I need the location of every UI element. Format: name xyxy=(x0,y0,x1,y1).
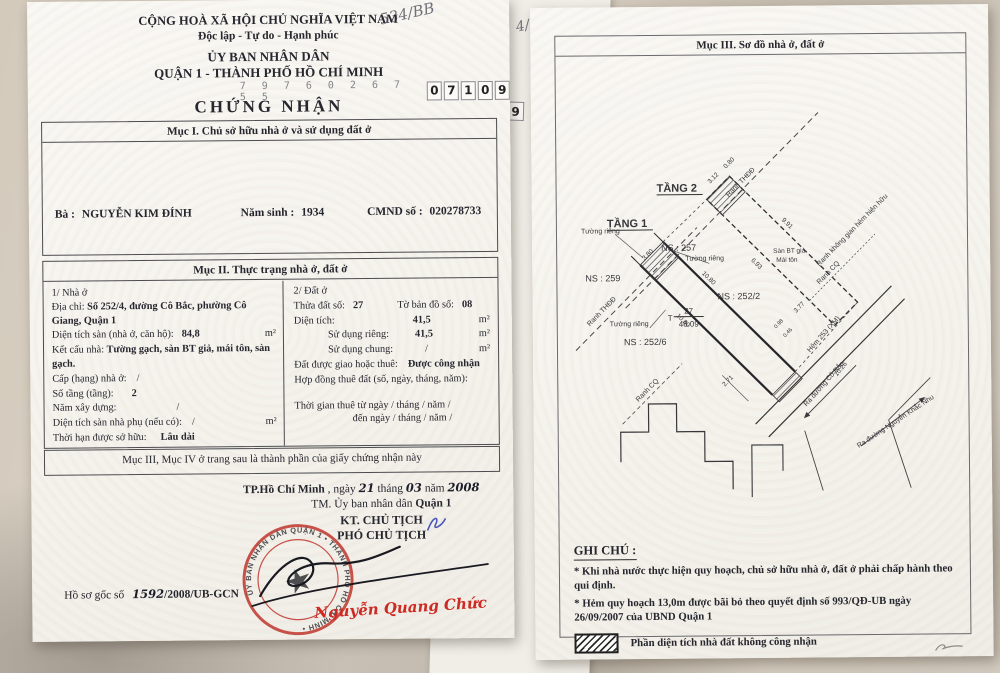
certificate-title: CHỨNG NHẬN xyxy=(28,95,510,119)
day-value: 21 xyxy=(359,481,375,495)
private-use-unit: m² xyxy=(479,327,490,341)
site-plan-box: Mục III. Sơ đồ nhà ở, đất ở xyxy=(554,32,971,638)
parcel-t: T xyxy=(668,314,673,323)
dossier-label: Hồ sơ gốc số xyxy=(64,589,124,602)
site-plan-drawing: TẦNG 2 TẦNG 1 NS : 257 NS : 259 NS : 252… xyxy=(555,55,967,511)
birth-year: 1934 xyxy=(301,206,324,218)
year-label: năm xyxy=(425,482,445,494)
certificate-page: 534/BB CỘNG HOÀ XÃ HỘI CHỦ NGHĨA VIỆT NA… xyxy=(27,0,515,642)
street-line xyxy=(805,430,824,490)
plot-value: 27 xyxy=(353,299,363,313)
legend-hatched-swatch xyxy=(574,633,618,653)
structure-label: Kết cấu nhà: xyxy=(52,345,104,356)
land-area-unit: m² xyxy=(479,313,490,327)
tm-unit: Quận 1 xyxy=(415,497,451,509)
floor-area-row: Diện tích sàn (nhà ở, căn hộ): 84,8 m² xyxy=(52,327,276,343)
shared-use-value: / xyxy=(425,343,428,357)
aux-area-label: Diện tích sàn nhà phụ (nếu có): xyxy=(53,416,182,431)
tenure-label: Thời hạn được sở hữu: xyxy=(53,431,147,446)
tick xyxy=(631,256,640,265)
neighbor-outline xyxy=(752,445,783,497)
legend-row: Phần diện tích nhà đất không công nhận xyxy=(574,630,958,653)
map-value: 08 xyxy=(462,298,472,312)
house-column: 1/ Nhà ở Địa chỉ: Số 252/4, đường Cô Bắc… xyxy=(43,281,284,448)
dimension: 3.77 xyxy=(793,300,807,314)
granted-row: Đất được giao hoặc thuê: Được công nhận xyxy=(294,357,490,373)
boundary-label: Ranh CQ xyxy=(635,377,661,403)
private-use-label: Sử dụng riêng: xyxy=(328,328,389,342)
alley-line xyxy=(754,286,892,424)
floor2-label: TẦNG 2 xyxy=(657,182,697,195)
leader-line xyxy=(650,310,666,328)
national-title: CỘNG HOÀ XÃ HỘI CHỦ NGHĨA VIỆT NAM xyxy=(27,11,509,30)
floors-value: 2 xyxy=(132,387,137,401)
owner-line: Bà : NGUYỄN KIM ĐÍNH Năm sinh : 1934 CMN… xyxy=(55,205,481,221)
wall-label: Tường riêng xyxy=(581,228,620,235)
shared-use-unit: m² xyxy=(479,342,490,356)
material-note: Sàn BT giả xyxy=(773,248,805,255)
legend-row: Phần diện tích nhà có chủ quyền phạm quy… xyxy=(575,659,959,660)
id-number: 020278733 xyxy=(429,205,481,217)
legend-label: Phần diện tích nhà đất không công nhận xyxy=(630,634,816,650)
land-area-row: Diện tích: 41,5 m² xyxy=(294,313,490,329)
muc2-box: Mục II. Thực trạng nhà ở, đất ở 1/ Nhà ở… xyxy=(42,257,500,449)
dimension: 0.46 xyxy=(782,327,794,339)
wall-label: Tường riêng xyxy=(685,255,724,262)
corner-pencil-mark xyxy=(934,636,966,654)
muc34-note: Mục III, Mục IV ở trang sau là thành phầ… xyxy=(45,447,499,467)
parcel-number: 27 xyxy=(684,307,694,316)
blue-pen-mark xyxy=(423,512,449,534)
dossier-suffix: /2008/UB-GCN xyxy=(164,588,239,601)
muc34-box: Mục III, Mục IV ở trang sau là thành phầ… xyxy=(44,446,500,476)
build-year-label: Năm xây dựng: xyxy=(52,402,116,416)
month-label: tháng xyxy=(377,483,403,495)
address-label: Địa chỉ: xyxy=(52,301,85,312)
private-use-row: Sử dụng riêng: 41,5 m² xyxy=(294,327,490,343)
shared-use-row: Sử dụng chung: / m² xyxy=(294,342,490,358)
neighbor-label: NS : 259 xyxy=(585,273,620,283)
notes-heading: GHI CHÚ : xyxy=(574,543,637,561)
grade-label: Cấp (hạng) nhà ở: xyxy=(52,372,126,386)
land-area-label: Diện tích: xyxy=(294,314,335,328)
floors-label: Số tầng (tầng): xyxy=(52,387,113,401)
plot-row: Thửa đất số: 27 Tờ bản đồ số: 08 xyxy=(294,298,490,314)
aux-area-unit: m² xyxy=(266,415,277,429)
neighbor-label: NS : 252/2 xyxy=(717,291,760,301)
build-year-row: Năm xây dựng: / xyxy=(52,400,276,416)
private-use-value: 41,5 xyxy=(415,328,433,342)
land-title: 2/ Đất ở xyxy=(293,283,489,299)
build-year-value: / xyxy=(176,401,179,415)
street-line xyxy=(889,420,912,488)
aux-area-value: / xyxy=(192,416,195,430)
photo-of-certificate: 4/BB 9 534/BB CỘNG HOÀ XÃ HỘI CHỦ NGHĨA … xyxy=(0,0,1000,673)
material-note: Mái tôn xyxy=(776,257,798,264)
plot-label: Thửa đất số: xyxy=(294,299,345,313)
cq-boundary-line xyxy=(622,364,683,425)
aux-area-row: Diện tích sàn nhà phụ (nếu có): / m² xyxy=(53,415,277,431)
map-label: Tờ bản đồ số: xyxy=(397,298,454,312)
hatched-area xyxy=(772,372,802,402)
floors-row: Số tầng (tầng): 2 xyxy=(52,385,276,401)
id-label: CMND số : xyxy=(367,206,423,218)
notes-section: GHI CHÚ : * Khi nhà nước thực hiện quy h… xyxy=(574,538,959,660)
date-pre: , ngày xyxy=(328,483,356,495)
granted-label: Đất được giao hoặc thuê: xyxy=(294,358,398,373)
dimension: 3.12 xyxy=(707,171,721,185)
neighbor-outline xyxy=(620,403,733,490)
wall-label: Tường riêng xyxy=(610,321,649,328)
site-plan-heading: Mục III. Sơ đồ nhà ở, đất ở xyxy=(555,33,965,57)
note-item: * Hẻm quy hoạch 13,0m được bãi bỏ theo q… xyxy=(574,593,958,625)
contract-row: Hợp đồng thuê đất (số, ngày, tháng, năm)… xyxy=(294,372,490,388)
structure-row: Kết cấu nhà: Tường gạch, sàn BT giả, mái… xyxy=(52,342,276,372)
tick xyxy=(654,233,663,242)
granted-value: Được công nhận xyxy=(408,357,480,371)
lease-to-row: đến ngày / tháng / năm / xyxy=(295,411,491,427)
floor-area-unit: m² xyxy=(265,327,276,341)
muc2-heading: Mục II. Thực trạng nhà ở, đất ở xyxy=(43,258,497,282)
dimension: 0.98 xyxy=(773,318,785,330)
shared-use-label: Sử dụng chung: xyxy=(328,343,393,357)
floor-area-value: 84,8 xyxy=(182,328,200,342)
note-item: * Khi nhà nước thực hiện quy hoạch, chủ … xyxy=(574,561,958,593)
dimension: 6.93 xyxy=(749,257,763,271)
dossier-line: Hồ sơ gốc số 1592/2008/UB-GCN xyxy=(64,586,239,602)
house-address-row: Địa chỉ: Số 252/4, đường Cô Bắc, phường … xyxy=(52,299,276,329)
muc1-box: Mục I. Chủ sở hữu nhà ở và sử dụng đất ở… xyxy=(41,118,498,256)
tenure-value: Lâu dài xyxy=(161,431,195,445)
owner-label: Bà : xyxy=(55,209,75,221)
month-value: 03 xyxy=(406,481,422,495)
site-plan-page: Mục III. Sơ đồ nhà ở, đất ở xyxy=(530,4,994,660)
alley-label: Hẻm 253 (XM) xyxy=(806,315,841,354)
dossier-number: 1592 xyxy=(132,587,164,601)
neighbor-label: NS : 257 xyxy=(661,243,696,253)
dimension: 10.80 xyxy=(700,270,717,287)
muc1-heading: Mục I. Chủ sở hữu nhà ở và sử dụng đất ở xyxy=(42,119,496,143)
floor-area-label: Diện tích sàn (nhà ở, căn hộ): xyxy=(52,328,174,343)
projection-line xyxy=(663,199,707,241)
owner-name: NGUYỄN KIM ĐÍNH xyxy=(82,208,192,221)
land-area-value: 41,5 xyxy=(413,313,431,327)
place-date-line: TP.Hồ Chí Minh , ngày 21 tháng 03 năm 20… xyxy=(181,480,514,497)
grade-value: / xyxy=(137,372,140,386)
dimension: 0.80 xyxy=(722,156,736,170)
grade-row: Cấp (hạng) nhà ở: / xyxy=(52,371,276,387)
neighbor-label: NS : 252/6 xyxy=(624,337,667,347)
land-column: 2/ Đất ở Thửa đất số: 27 Tờ bản đồ số: 0… xyxy=(283,279,498,446)
birth-label: Năm sinh : xyxy=(241,207,295,219)
leader-line xyxy=(615,234,643,258)
signing-place: TP.Hồ Chí Minh xyxy=(243,483,325,496)
national-motto: Độc lập - Tự do - Hạnh phúc xyxy=(27,28,509,44)
year-value: 2008 xyxy=(447,480,479,494)
tenure-row: Thời hạn được sở hữu: Lâu dài xyxy=(53,430,277,446)
